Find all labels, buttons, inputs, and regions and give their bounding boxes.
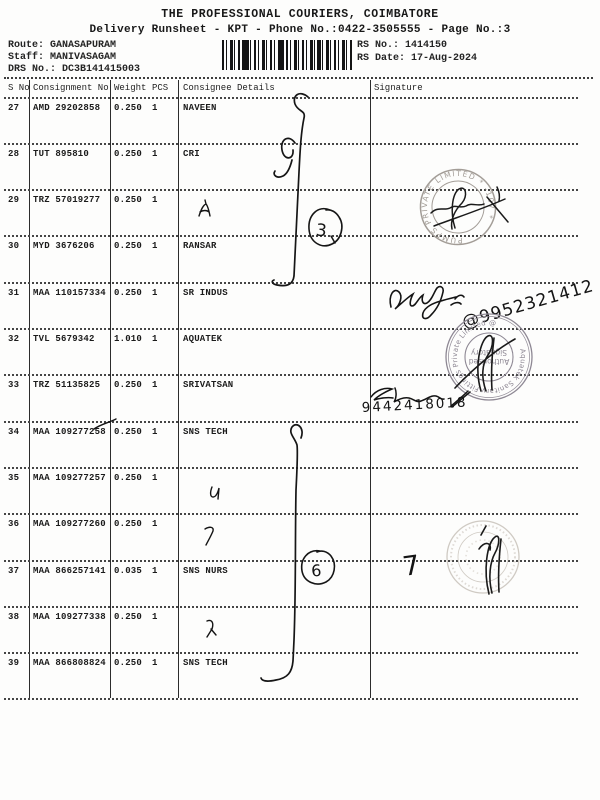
cell-consignee: SNS TECH xyxy=(183,658,228,668)
cell-pcs: 1 xyxy=(152,380,158,390)
cell-sno: 34 xyxy=(8,427,19,437)
cell-sno: 38 xyxy=(8,612,19,622)
cell-sno: 33 xyxy=(8,380,19,390)
mark-row29 xyxy=(199,200,210,216)
cell-weight: 0.250 xyxy=(114,149,142,159)
circled-number-3: 3 xyxy=(309,209,342,246)
cell-pcs: 1 xyxy=(152,427,158,437)
header-signature: Signature xyxy=(374,83,423,93)
cell-weight: 0.250 xyxy=(114,473,142,483)
barcode xyxy=(222,40,354,70)
row-divider xyxy=(4,189,578,191)
cell-consignment: MAA 866808824 xyxy=(33,658,106,668)
stamp2-signature-scribble xyxy=(452,336,515,407)
row-divider xyxy=(4,421,578,423)
cell-weight: 0.250 xyxy=(114,612,142,622)
row-divider xyxy=(4,282,578,284)
cell-weight: 0.250 xyxy=(114,519,142,529)
cell-consignment: TUT 895810 xyxy=(33,149,89,159)
cell-consignee: SR INDUS xyxy=(183,288,228,298)
mark-row35 xyxy=(211,487,219,499)
cell-consignment: MAA 109277260 xyxy=(33,519,106,529)
drs-label: DRS No.: xyxy=(8,64,62,75)
row-divider xyxy=(4,606,578,608)
cell-consignment: MAA 110157334 xyxy=(33,288,106,298)
header-consignment: Consignment No xyxy=(33,83,109,93)
company-title: THE PROFESSIONAL COURIERS, COIMBATORE xyxy=(0,8,600,21)
row-divider xyxy=(4,698,578,700)
cell-pcs: 1 xyxy=(152,519,158,529)
header-consignee: Consignee Details xyxy=(183,83,275,93)
circled-number-6: 6 xyxy=(302,551,335,584)
cell-pcs: 1 xyxy=(152,241,158,251)
cell-consignment: AMD 29202858 xyxy=(33,103,100,113)
cell-sno: 32 xyxy=(8,334,19,344)
rs-no-label: RS No.: xyxy=(357,40,405,51)
rs-date-label: RS Date: xyxy=(357,53,411,64)
cell-pcs: 1 xyxy=(152,473,158,483)
cell-consignee: CRI xyxy=(183,149,200,159)
signature-row33 xyxy=(371,388,468,406)
cell-sno: 31 xyxy=(8,288,19,298)
mark-row38 xyxy=(207,620,216,637)
cell-weight: 0.250 xyxy=(114,195,142,205)
staff-line: Staff: MANIVASAGAM xyxy=(8,52,116,63)
row-divider xyxy=(4,467,578,469)
cell-pcs: 1 xyxy=(152,566,158,576)
header-sno: S No xyxy=(8,83,30,93)
staff-label: Staff: xyxy=(8,52,50,63)
cell-consignment: MAA 109277258 xyxy=(33,427,106,437)
rs-date-line: RS Date: 17-Aug-2024 xyxy=(357,53,477,64)
stamp2-inner-text-2: Signatory xyxy=(470,348,507,357)
route-label: Route: xyxy=(8,40,50,51)
svg-text:3: 3 xyxy=(315,220,328,241)
signature-row31 xyxy=(390,287,464,319)
cell-sno: 27 xyxy=(8,103,19,113)
cell-pcs: 1 xyxy=(152,334,158,344)
cell-sno: 35 xyxy=(8,473,19,483)
handwriting-overlay: 3 PUMPS PRIVATE LIMITED * -107 * @995232… xyxy=(0,0,600,800)
round-stamp-aquatek: Aquatek Sanitary Fittings Private Limite… xyxy=(443,311,535,403)
cell-sno: 28 xyxy=(8,149,19,159)
cell-consignee: RANSAR xyxy=(183,241,217,251)
cell-weight: 0.035 xyxy=(114,566,142,576)
handwritten-phone-2: 9442418018 xyxy=(361,394,468,416)
drs-line: DRS No.: DC3B141415003 xyxy=(8,64,140,75)
cell-weight: 0.250 xyxy=(114,241,142,251)
cell-sno: 37 xyxy=(8,566,19,576)
staff-value: MANIVASAGAM xyxy=(50,52,116,63)
header-pcs: PCS xyxy=(152,83,168,93)
cell-pcs: 1 xyxy=(152,612,158,622)
route-line: Route: GANASAPURAM xyxy=(8,40,116,51)
stamp2-inner-text-1: Authorised xyxy=(468,357,509,366)
cell-weight: 0.250 xyxy=(114,288,142,298)
rs-no-line: RS No.: 1414150 xyxy=(357,40,447,51)
pen-stroke-rows34-39 xyxy=(261,425,302,681)
mark-row36 xyxy=(205,527,213,545)
runsheet-page: THE PROFESSIONAL COURIERS, COIMBATORE De… xyxy=(0,0,600,800)
row-divider xyxy=(4,652,578,654)
cell-weight: 1.010 xyxy=(114,334,142,344)
cell-consignee: NAVEEN xyxy=(183,103,217,113)
cell-sno: 36 xyxy=(8,519,19,529)
cell-consignment: MAA 109277257 xyxy=(33,473,106,483)
cell-pcs: 1 xyxy=(152,195,158,205)
svg-text:Aquatek Sanitary Fittings Priv: Aquatek Sanitary Fittings Private Limite… xyxy=(443,311,535,403)
cell-weight: 0.250 xyxy=(114,427,142,437)
cell-consignee: AQUATEK xyxy=(183,334,222,344)
header-divider xyxy=(4,77,593,79)
cell-consignment: MYD 3676206 xyxy=(33,241,95,251)
stamp2-rim-text: Aquatek Sanitary Fittings Private Limite… xyxy=(443,311,535,403)
cell-consignee: SNS NURS xyxy=(183,566,228,576)
runsheet-subtitle: Delivery Runsheet - KPT - Phone No.:0422… xyxy=(0,24,600,36)
cell-consignee: SRIVATSAN xyxy=(183,380,233,390)
cell-weight: 0.250 xyxy=(114,658,142,668)
handwritten-phone-1: @9952321412 xyxy=(460,276,596,333)
row-divider xyxy=(4,235,578,237)
row-divider xyxy=(4,97,578,99)
row-divider xyxy=(4,374,578,376)
cell-sno: 39 xyxy=(8,658,19,668)
cell-consignee: SNS TECH xyxy=(183,427,228,437)
row-divider xyxy=(4,143,578,145)
handwritten-mark-7: 7 xyxy=(401,550,422,583)
route-value: GANASAPURAM xyxy=(50,40,116,51)
cell-consignment: MAA 866257141 xyxy=(33,566,106,576)
row-divider xyxy=(4,328,578,330)
svg-text:6: 6 xyxy=(311,561,322,581)
cell-pcs: 1 xyxy=(152,658,158,668)
row-divider xyxy=(4,560,578,562)
cell-sno: 29 xyxy=(8,195,19,205)
cell-pcs: 1 xyxy=(152,149,158,159)
cell-weight: 0.250 xyxy=(114,103,142,113)
stamp1-signature-scribble xyxy=(431,187,508,229)
rs-no-value: 1414150 xyxy=(405,40,447,51)
cell-pcs: 1 xyxy=(152,103,158,113)
row-divider xyxy=(4,513,578,515)
rs-date-value: 17-Aug-2024 xyxy=(411,53,477,64)
round-stamp-faint xyxy=(447,521,519,593)
cell-consignment: TRZ 51135825 xyxy=(33,380,100,390)
cell-consignment: MAA 109277338 xyxy=(33,612,106,622)
cell-consignment: TRZ 57019277 xyxy=(33,195,100,205)
header-weight: Weight xyxy=(114,83,146,93)
cell-sno: 30 xyxy=(8,241,19,251)
cell-consignment: TVL 5679342 xyxy=(33,334,95,344)
cell-pcs: 1 xyxy=(152,288,158,298)
drs-value: DC3B141415003 xyxy=(62,64,140,75)
cell-weight: 0.250 xyxy=(114,380,142,390)
